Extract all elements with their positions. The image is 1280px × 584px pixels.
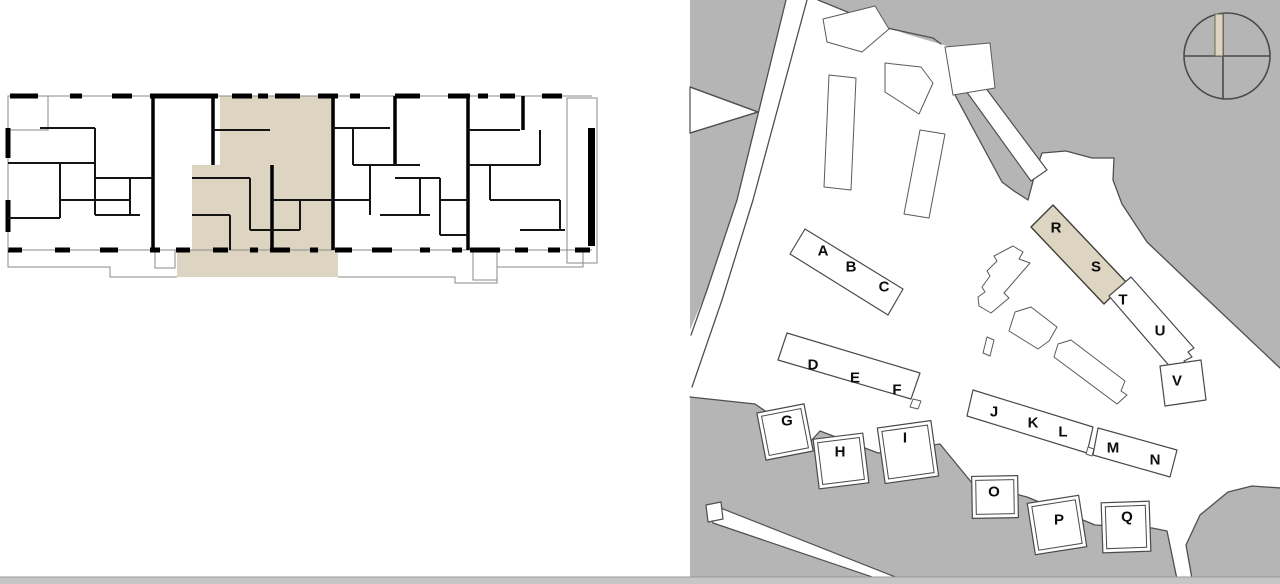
land-bottom-right xyxy=(1186,486,1280,584)
building-label-F[interactable]: F xyxy=(892,382,901,399)
land-top-left xyxy=(690,0,786,330)
building-label-B[interactable]: B xyxy=(846,259,857,276)
building-label-I[interactable]: I xyxy=(903,430,907,447)
building-label-G[interactable]: G xyxy=(781,413,793,430)
building-DEF-annex xyxy=(910,399,921,409)
building-label-C[interactable]: C xyxy=(879,279,890,296)
building-V[interactable] xyxy=(1160,360,1206,406)
existing-building-jagged xyxy=(1054,340,1127,404)
parapet-outline-right xyxy=(338,252,583,283)
bottom-bar xyxy=(0,577,1280,584)
balcony-outline-left xyxy=(8,96,48,130)
plot-H[interactable] xyxy=(813,433,869,489)
building-label-H[interactable]: H xyxy=(835,444,846,461)
building-label-J[interactable]: J xyxy=(990,404,998,421)
stair-outline xyxy=(473,250,497,280)
building-label-A[interactable]: A xyxy=(818,243,829,260)
existing-building-jagged xyxy=(1009,307,1057,349)
compass-north-needle xyxy=(1215,14,1223,56)
existing-building-jagged xyxy=(978,246,1030,313)
building-label-O[interactable]: O xyxy=(988,484,1000,501)
building-label-R[interactable]: R xyxy=(1051,220,1062,237)
entry-outline xyxy=(155,250,175,268)
plans-canvas: ABCDEFGHIJKLMNOPQRSTUV xyxy=(0,0,1280,584)
building-label-Q[interactable]: Q xyxy=(1121,509,1133,526)
building-label-K[interactable]: K xyxy=(1028,415,1039,432)
plot-I[interactable] xyxy=(877,421,938,484)
building-label-D[interactable]: D xyxy=(808,357,819,374)
building-label-U[interactable]: U xyxy=(1155,323,1166,340)
building-label-L[interactable]: L xyxy=(1058,424,1067,441)
building-label-V[interactable]: V xyxy=(1172,373,1182,390)
site-plan: ABCDEFGHIJKLMNOPQRSTUV xyxy=(690,0,1280,584)
building-label-T[interactable]: T xyxy=(1118,292,1127,309)
building-label-M[interactable]: M xyxy=(1107,440,1120,457)
building-MN[interactable] xyxy=(1093,428,1177,477)
existing-building xyxy=(904,130,945,218)
building-label-S[interactable]: S xyxy=(1091,259,1101,276)
building-label-P[interactable]: P xyxy=(1054,512,1064,529)
plan-viewer: ABCDEFGHIJKLMNOPQRSTUV xyxy=(0,0,1280,584)
existing-building xyxy=(824,75,856,190)
existing-building-sliver xyxy=(983,337,994,356)
existing-building xyxy=(823,6,889,52)
existing-building xyxy=(945,43,995,95)
access-road-south-notch xyxy=(706,502,723,522)
existing-building xyxy=(885,63,933,114)
floor-plan xyxy=(8,96,597,283)
building-RS-highlighted[interactable] xyxy=(1031,205,1126,304)
building-label-E[interactable]: E xyxy=(850,370,860,387)
building-label-N[interactable]: N xyxy=(1150,452,1161,469)
